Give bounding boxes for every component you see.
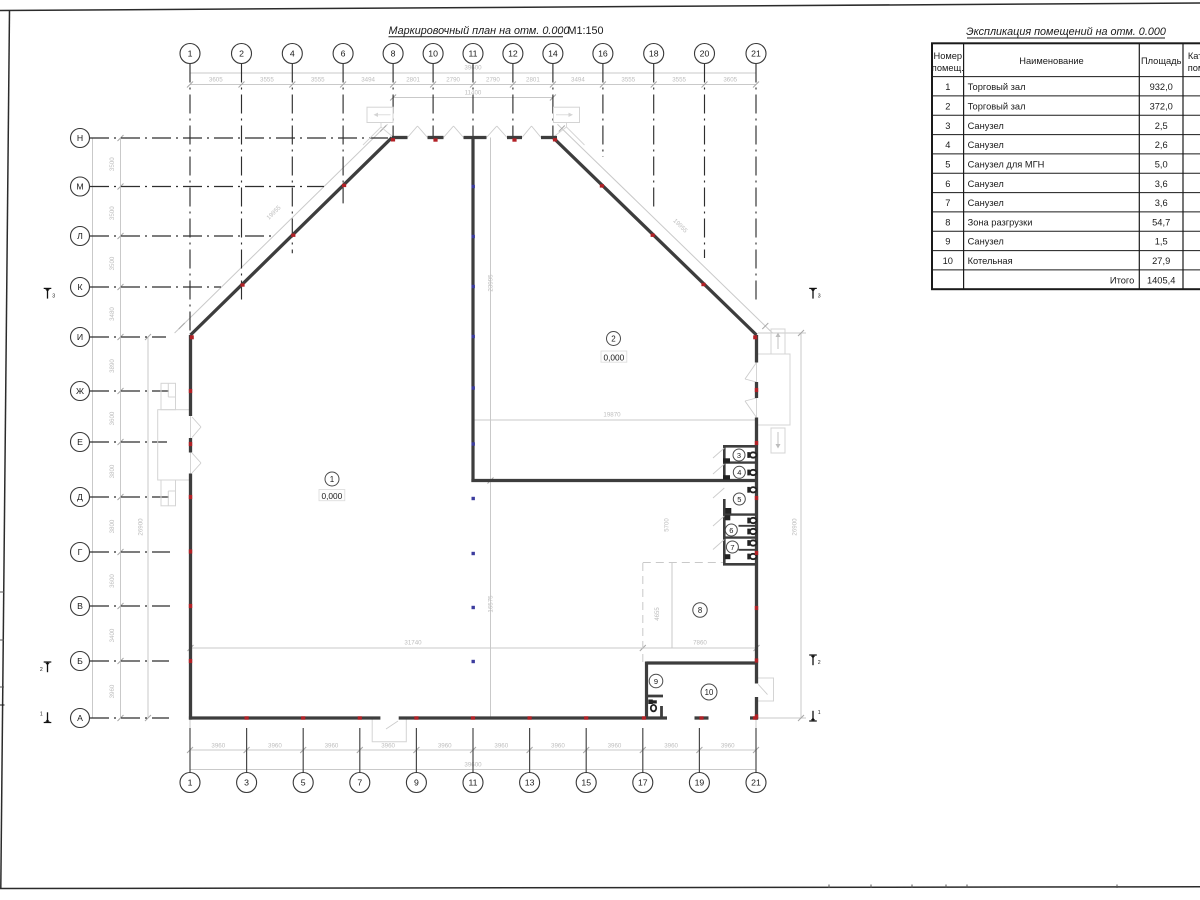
svg-text:3: 3 <box>737 451 741 460</box>
svg-text:8: 8 <box>698 606 702 615</box>
svg-text:3: 3 <box>818 294 821 300</box>
svg-text:3480: 3480 <box>109 307 116 321</box>
svg-text:16575: 16575 <box>488 595 495 613</box>
svg-text:помещ.: помещ. <box>932 63 964 73</box>
svg-text:8: 8 <box>945 217 950 227</box>
svg-text:9: 9 <box>654 677 658 686</box>
svg-text:2: 2 <box>40 667 43 673</box>
svg-text:3555: 3555 <box>672 77 686 84</box>
svg-text:2790: 2790 <box>446 77 460 84</box>
svg-text:19955: 19955 <box>265 204 283 221</box>
svg-text:1: 1 <box>40 712 43 718</box>
svg-text:3605: 3605 <box>723 77 737 84</box>
svg-text:Экспликация помещений на отм.: Экспликация помещений на отм. 0.000 <box>966 26 1166 38</box>
svg-text:3500: 3500 <box>109 157 116 171</box>
svg-text:1,5: 1,5 <box>1155 237 1168 247</box>
svg-text:Зона разгрузки: Зона разгрузки <box>968 217 1033 227</box>
svg-text:18: 18 <box>649 49 659 59</box>
svg-text:6: 6 <box>945 179 950 189</box>
svg-text:27,9: 27,9 <box>1152 256 1170 266</box>
svg-text:10: 10 <box>428 49 438 59</box>
svg-text:1: 1 <box>188 49 193 59</box>
svg-text:19: 19 <box>695 778 705 788</box>
svg-text:4: 4 <box>945 140 950 150</box>
svg-text:3800: 3800 <box>109 464 116 478</box>
svg-text:Санузел для МГН: Санузел для МГН <box>968 159 1045 169</box>
svg-text:3400: 3400 <box>109 628 116 642</box>
svg-text:4: 4 <box>737 468 741 477</box>
svg-text:11: 11 <box>468 778 477 788</box>
svg-text:7: 7 <box>945 198 950 208</box>
svg-text:3555: 3555 <box>311 77 325 84</box>
svg-text:17: 17 <box>638 778 648 788</box>
svg-text:7860: 7860 <box>693 640 707 647</box>
svg-text:5700: 5700 <box>665 518 671 532</box>
svg-text:6: 6 <box>729 526 733 535</box>
svg-text:3960: 3960 <box>325 743 339 750</box>
svg-text:3600: 3600 <box>109 574 116 588</box>
svg-text:3960: 3960 <box>438 743 452 750</box>
svg-text:3500: 3500 <box>109 206 116 220</box>
svg-text:3960: 3960 <box>268 743 282 750</box>
svg-text:Е: Е <box>77 437 83 447</box>
svg-text:14: 14 <box>548 49 558 59</box>
svg-text:4655: 4655 <box>655 607 661 621</box>
svg-text:3494: 3494 <box>571 77 585 84</box>
svg-text:3,6: 3,6 <box>1155 198 1168 208</box>
svg-text:1405,4: 1405,4 <box>1147 275 1175 285</box>
svg-text:2: 2 <box>611 334 616 343</box>
svg-text:Н: Н <box>77 133 83 143</box>
svg-text:2,5: 2,5 <box>1155 121 1168 131</box>
svg-text:3960: 3960 <box>381 743 395 750</box>
svg-text:4: 4 <box>290 49 295 59</box>
svg-text:23995: 23995 <box>488 274 495 292</box>
svg-text:3890: 3890 <box>109 359 116 373</box>
svg-text:3: 3 <box>52 294 55 300</box>
svg-text:3494: 3494 <box>361 77 375 84</box>
svg-text:Л: Л <box>77 231 83 241</box>
svg-text:3960: 3960 <box>608 743 622 750</box>
svg-text:1: 1 <box>188 778 193 788</box>
svg-text:Итого: Итого <box>1110 275 1134 285</box>
svg-text:20: 20 <box>700 49 710 59</box>
svg-text:Площадь: Площадь <box>1141 56 1182 66</box>
svg-text:Торговый зал: Торговый зал <box>968 82 1026 92</box>
svg-text:Торговый зал: Торговый зал <box>968 101 1026 111</box>
svg-text:3960: 3960 <box>551 743 565 750</box>
svg-text:2: 2 <box>818 660 821 666</box>
svg-text:10: 10 <box>943 256 953 266</box>
svg-text:2: 2 <box>945 101 950 111</box>
svg-text:15: 15 <box>581 778 591 788</box>
svg-text:7: 7 <box>357 778 362 788</box>
svg-text:3960: 3960 <box>494 743 508 750</box>
svg-text:3600: 3600 <box>109 411 116 425</box>
svg-text:6: 6 <box>341 49 346 59</box>
svg-text:1: 1 <box>945 82 950 92</box>
svg-text:2,6: 2,6 <box>1155 140 1168 150</box>
svg-text:3555: 3555 <box>260 77 274 84</box>
svg-text:Санузел: Санузел <box>968 121 1004 131</box>
svg-text:Санузел: Санузел <box>968 198 1004 208</box>
svg-text:7: 7 <box>730 543 734 552</box>
svg-text:Наименование: Наименование <box>1019 56 1083 66</box>
svg-text:9: 9 <box>945 237 950 247</box>
svg-text:В: В <box>77 601 83 611</box>
svg-text:9: 9 <box>414 778 419 788</box>
svg-text:932,0: 932,0 <box>1150 82 1173 92</box>
svg-text:М1:150: М1:150 <box>568 25 604 37</box>
svg-text:21: 21 <box>751 778 761 788</box>
svg-text:3960: 3960 <box>721 743 735 750</box>
svg-text:2: 2 <box>239 49 244 59</box>
svg-text:16: 16 <box>598 49 608 59</box>
svg-text:5: 5 <box>737 495 741 504</box>
svg-text:31740: 31740 <box>404 640 422 647</box>
svg-text:0,000: 0,000 <box>604 352 625 362</box>
svg-text:3800: 3800 <box>109 519 116 533</box>
svg-text:12: 12 <box>508 49 518 59</box>
svg-text:21: 21 <box>751 49 761 59</box>
svg-text:Санузел: Санузел <box>968 237 1004 247</box>
svg-text:3960: 3960 <box>211 743 225 750</box>
svg-text:3,6: 3,6 <box>1155 179 1168 189</box>
svg-text:Г: Г <box>78 547 83 557</box>
svg-text:А: А <box>77 713 83 723</box>
svg-text:0,000: 0,000 <box>322 491 343 501</box>
svg-text:54,7: 54,7 <box>1152 217 1170 227</box>
svg-text:19870: 19870 <box>603 412 621 419</box>
svg-text:3500: 3500 <box>109 256 116 270</box>
svg-text:Санузел: Санузел <box>968 179 1004 189</box>
svg-text:5: 5 <box>945 159 950 169</box>
svg-text:3605: 3605 <box>209 77 223 84</box>
svg-text:26900: 26900 <box>138 518 145 536</box>
svg-text:3960: 3960 <box>109 684 116 698</box>
svg-text:Номер: Номер <box>933 51 962 61</box>
svg-text:5: 5 <box>301 778 306 788</box>
svg-text:Кат.: Кат. <box>1188 51 1200 61</box>
svg-text:5,0: 5,0 <box>1155 159 1168 169</box>
svg-text:Маркировочный план на отм. 0.0: Маркировочный план на отм. 0.000 <box>389 25 570 37</box>
svg-text:2801: 2801 <box>526 77 540 84</box>
svg-text:Санузел: Санузел <box>968 140 1004 150</box>
svg-text:Д: Д <box>77 492 83 502</box>
svg-text:2801: 2801 <box>406 77 420 84</box>
svg-text:Ж: Ж <box>76 386 84 396</box>
svg-text:19955: 19955 <box>671 217 689 234</box>
svg-text:372,0: 372,0 <box>1150 101 1173 111</box>
svg-text:10: 10 <box>705 688 714 697</box>
svg-text:1: 1 <box>330 475 335 484</box>
svg-text:3960: 3960 <box>664 743 678 750</box>
svg-text:2790: 2790 <box>486 77 500 84</box>
svg-text:13: 13 <box>525 778 535 788</box>
svg-text:Б: Б <box>77 656 83 666</box>
svg-text:26900: 26900 <box>792 518 799 536</box>
svg-text:М: М <box>76 182 83 192</box>
svg-text:И: И <box>77 332 83 342</box>
svg-text:3555: 3555 <box>621 77 635 84</box>
svg-text:1: 1 <box>818 710 821 716</box>
svg-text:3: 3 <box>244 778 249 788</box>
svg-text:8: 8 <box>391 49 396 59</box>
svg-text:пом: пом <box>1188 63 1200 73</box>
svg-text:Котельная: Котельная <box>968 256 1013 266</box>
svg-text:11: 11 <box>468 49 477 59</box>
svg-text:3: 3 <box>945 121 950 131</box>
